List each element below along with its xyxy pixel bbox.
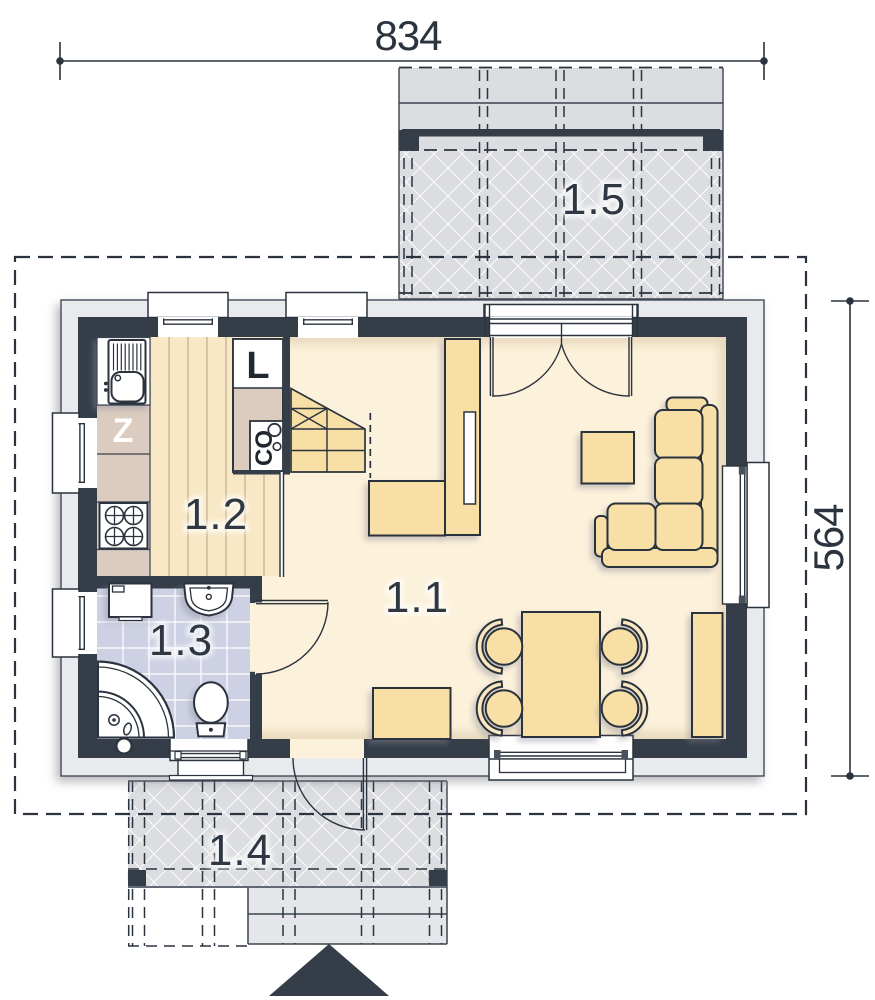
svg-text:1.4: 1.4 [208, 826, 272, 875]
svg-text:Z: Z [113, 412, 134, 450]
svg-text:1.3: 1.3 [149, 616, 213, 665]
svg-text:L: L [246, 345, 269, 387]
svg-text:1.5: 1.5 [562, 175, 626, 224]
svg-text:834: 834 [374, 12, 442, 59]
svg-text:1.1: 1.1 [385, 573, 449, 622]
svg-text:1.2: 1.2 [184, 490, 248, 539]
svg-text:564: 564 [805, 504, 852, 572]
